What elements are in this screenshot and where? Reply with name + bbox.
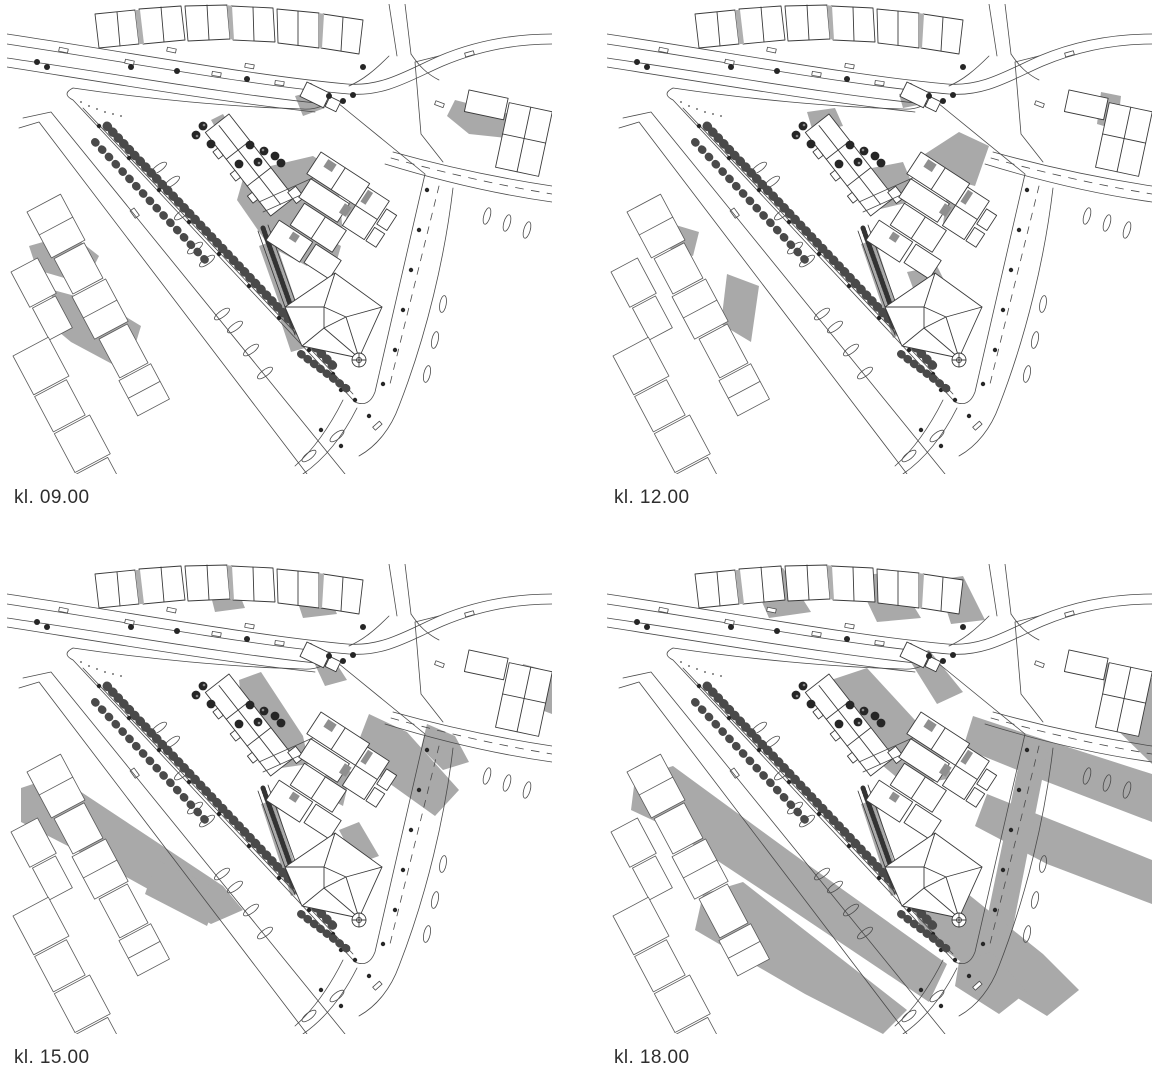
panel-time-label: kl. 15.00 — [14, 1047, 89, 1069]
site-plan-0900 — [7, 4, 552, 474]
panel-time-label: kl. 18.00 — [614, 1047, 689, 1069]
shadow-study-grid: kl. 09.00 kl. 12.00 kl. 15.00 kl. 18.00 — [0, 0, 1160, 1080]
panel-time-label: kl. 09.00 — [14, 487, 89, 509]
panel-time-label: kl. 12.00 — [614, 487, 689, 509]
site-plan-1500 — [7, 564, 552, 1034]
site-plan-1200 — [607, 4, 1152, 474]
site-plan-1800 — [607, 564, 1152, 1034]
